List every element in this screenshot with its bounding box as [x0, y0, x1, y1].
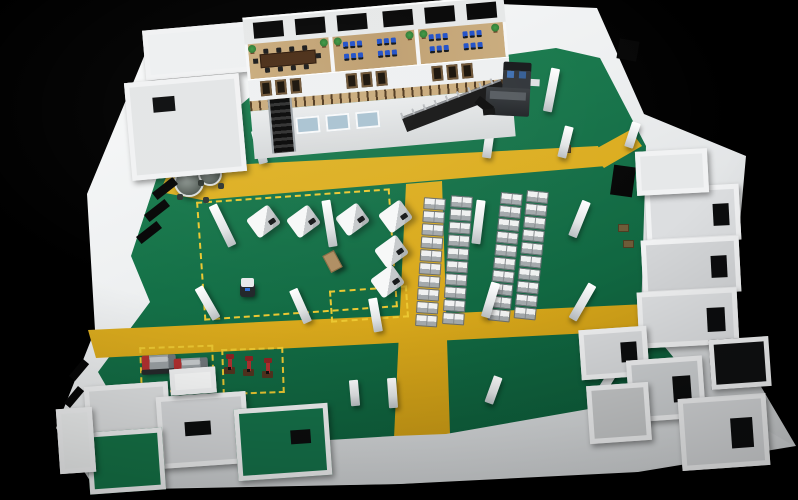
fascia-window	[290, 78, 302, 94]
machine-unit	[445, 273, 468, 287]
machine-unit	[443, 299, 466, 313]
cnc-blue-module	[507, 71, 514, 78]
machine-unit	[447, 247, 470, 261]
chair	[203, 197, 209, 203]
fascia-window	[346, 73, 358, 89]
monitor	[443, 45, 449, 52]
machine-unit	[420, 249, 443, 263]
room	[708, 336, 771, 390]
machine-unit	[519, 254, 542, 268]
agv-light	[245, 288, 250, 291]
machine-unit	[450, 195, 473, 209]
fascia-window	[446, 64, 458, 80]
monitor	[470, 42, 476, 49]
press-head	[264, 358, 272, 363]
conference-chair	[253, 58, 258, 63]
office-back-window	[466, 2, 497, 21]
drill-press	[262, 362, 273, 378]
office-back-window	[382, 9, 413, 28]
monitor	[477, 42, 483, 49]
conference-chair	[265, 67, 270, 72]
monitor	[384, 38, 390, 45]
machine-unit	[496, 231, 519, 245]
cnc-machine	[476, 60, 549, 128]
door-opening	[713, 203, 730, 226]
office-back-window	[295, 17, 326, 36]
room	[142, 21, 252, 80]
room	[586, 382, 652, 444]
machine-unit	[526, 190, 549, 204]
monitor	[377, 39, 383, 46]
machine-unit	[418, 275, 441, 289]
fascia-window	[361, 72, 373, 88]
monitor	[343, 42, 349, 49]
machine-unit	[522, 229, 545, 243]
ground-window	[325, 113, 350, 132]
monitor	[435, 33, 441, 40]
machine-unit	[524, 203, 547, 217]
chair	[198, 180, 204, 186]
door-opening	[184, 420, 211, 436]
conference-chair	[276, 47, 281, 52]
room	[86, 427, 166, 494]
chair	[218, 183, 224, 189]
machine-unit	[494, 244, 517, 258]
machine-unit	[422, 210, 445, 224]
fascia-window	[431, 65, 443, 81]
machine-unit	[492, 269, 515, 283]
office-back-window	[253, 20, 284, 39]
machine-unit	[493, 256, 516, 270]
pallet	[618, 224, 629, 232]
ground-window	[355, 110, 380, 129]
machine-unit	[523, 216, 546, 230]
machine-unit	[520, 242, 543, 256]
monitor	[430, 46, 436, 53]
door-opening	[290, 429, 311, 444]
room	[635, 148, 709, 196]
door-opening	[730, 417, 754, 448]
machine-unit	[446, 260, 469, 274]
door-opening	[707, 307, 726, 332]
cnc-cap	[530, 79, 539, 86]
press-head	[245, 356, 253, 361]
monitor	[469, 31, 475, 38]
room	[56, 407, 96, 474]
machine-unit	[420, 236, 443, 250]
machine-unit	[498, 205, 521, 219]
monitor	[462, 31, 468, 38]
wall-window	[616, 38, 639, 61]
press-tip	[228, 367, 231, 370]
office-back-window	[336, 13, 367, 32]
monitor	[378, 51, 384, 58]
machine-unit	[444, 286, 467, 300]
monitor	[391, 37, 397, 44]
machine-unit	[497, 218, 520, 232]
machine-unit	[516, 280, 539, 294]
monitor	[351, 53, 357, 60]
fascia-window	[375, 70, 387, 86]
machine-unit	[417, 288, 440, 302]
chair	[177, 194, 183, 200]
drill-press	[224, 358, 235, 374]
cnc-blue-module	[519, 71, 526, 78]
lathe-top	[182, 360, 200, 366]
ground-window	[295, 115, 320, 134]
monitor	[442, 33, 448, 40]
fascia-window	[275, 79, 287, 95]
machine-unit	[442, 312, 465, 326]
press-head	[226, 354, 234, 359]
conference-chair	[316, 53, 321, 58]
fascia-window	[260, 80, 272, 96]
agv-top	[241, 278, 254, 287]
room	[124, 73, 247, 181]
machine-unit	[421, 223, 444, 237]
factory-floorplan-render	[0, 0, 798, 500]
press-tip	[266, 371, 269, 374]
monitor	[357, 40, 363, 47]
machine-unit	[419, 262, 442, 276]
drill-press	[243, 360, 254, 376]
conference-chair	[291, 65, 296, 70]
room	[678, 393, 771, 471]
conference-chair	[263, 49, 268, 54]
monitor	[350, 41, 356, 48]
agv-robot	[240, 278, 256, 298]
conference-chair	[302, 45, 307, 50]
office-block	[242, 0, 515, 159]
monitor	[437, 45, 443, 52]
machine-unit	[423, 197, 446, 211]
door-opening	[711, 255, 728, 278]
conference-chair	[289, 46, 294, 51]
monitor	[358, 52, 364, 59]
room	[234, 403, 333, 481]
machine-unit	[449, 208, 472, 222]
staircase-left	[268, 98, 297, 154]
wall-window	[610, 165, 636, 198]
room	[169, 366, 217, 395]
machine-unit	[447, 234, 470, 248]
monitor	[385, 50, 391, 57]
machine-unit	[500, 192, 523, 206]
office-back-window	[424, 5, 455, 24]
machine-unit	[416, 301, 439, 315]
machine-unit	[514, 306, 537, 320]
machine-unit	[448, 221, 471, 235]
machine-unit	[515, 293, 538, 307]
conference-chair	[304, 64, 309, 69]
lathe-top	[150, 357, 168, 363]
monitor	[392, 49, 398, 56]
pallet	[623, 240, 634, 248]
machine-unit	[518, 267, 541, 281]
conference-chair	[278, 66, 283, 71]
monitor	[428, 34, 434, 41]
monitor	[463, 43, 469, 50]
monitor	[476, 30, 482, 37]
machine-unit	[415, 314, 438, 328]
press-tip	[247, 369, 250, 372]
monitor	[344, 54, 350, 61]
door-opening	[152, 96, 175, 113]
fascia-window	[461, 63, 473, 79]
